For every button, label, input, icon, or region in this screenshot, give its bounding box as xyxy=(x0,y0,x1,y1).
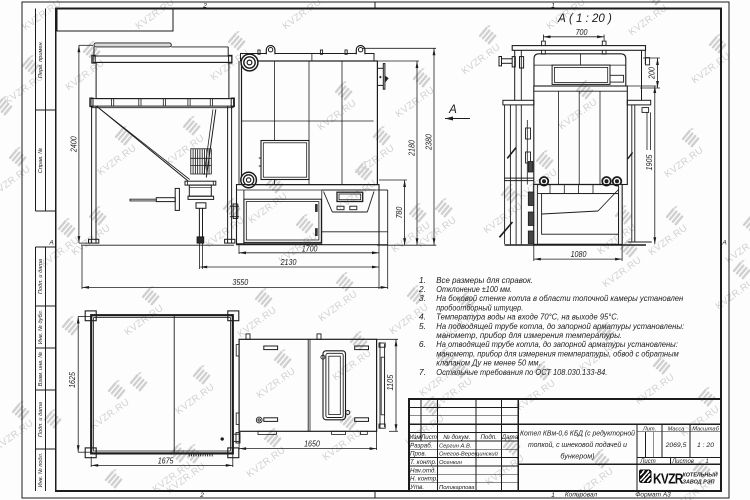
svg-text:Дата: Дата xyxy=(501,434,519,441)
svg-text:Н. контр.: Н. контр. xyxy=(410,476,438,483)
svg-text:Подп. и дата: Подп. и дата xyxy=(38,259,44,294)
svg-text:Лит.: Лит. xyxy=(642,426,656,432)
svg-text:2130: 2130 xyxy=(280,257,297,267)
svg-text:Подп.: Подп. xyxy=(480,434,496,441)
svg-text:1: 1 xyxy=(551,492,555,499)
svg-text:Сергин А.В.: Сергин А.В. xyxy=(439,443,471,449)
svg-text:1650: 1650 xyxy=(304,439,320,449)
svg-text:Масштаб: Масштаб xyxy=(692,426,719,432)
svg-text:1625: 1625 xyxy=(67,372,77,388)
svg-text:Копировал: Копировал xyxy=(565,492,598,499)
svg-text:Масса: Масса xyxy=(668,426,685,432)
svg-text:бункером): бункером) xyxy=(560,452,594,461)
svg-text:Лист: Лист xyxy=(420,434,437,441)
svg-text:А: А xyxy=(448,104,457,116)
svg-text:3.: 3. xyxy=(419,293,426,303)
svg-text:Справ. №: Справ. № xyxy=(38,148,44,173)
svg-text:Онегов-Верещинский: Онегов-Верещинский xyxy=(439,451,499,458)
svg-text:2380: 2380 xyxy=(424,134,434,151)
svg-text:Котел КВм-0,6 КБД (с редукторн: Котел КВм-0,6 КБД (с редукторной xyxy=(520,429,635,438)
svg-text:Нач.отд.: Нач.отд. xyxy=(410,467,436,474)
svg-text:780: 780 xyxy=(394,206,404,218)
svg-text:Формат А3: Формат А3 xyxy=(635,492,671,499)
svg-text:Разраб.: Разраб. xyxy=(410,442,432,449)
svg-text:Утв.: Утв. xyxy=(409,484,424,491)
svg-text:3550: 3550 xyxy=(232,277,248,287)
svg-text:KVZR: KVZR xyxy=(653,470,684,486)
svg-text:2069,5: 2069,5 xyxy=(665,442,687,449)
svg-text:200: 200 xyxy=(646,67,656,80)
svg-text:1 : 20: 1 : 20 xyxy=(697,442,714,449)
svg-text:топкой, с шнековой подачей и: топкой, с шнековой подачей и xyxy=(528,440,627,449)
svg-text:Осенкин: Осенкин xyxy=(439,460,463,466)
svg-text:2180: 2180 xyxy=(407,140,417,157)
svg-text:ЗАВОД РЭП: ЗАВОД РЭП xyxy=(683,480,715,486)
svg-text:1105: 1105 xyxy=(385,375,395,391)
svg-text:Т. контр.: Т. контр. xyxy=(410,459,437,466)
svg-text:А: А xyxy=(48,240,53,247)
svg-text:№ докум.: № докум. xyxy=(443,434,470,441)
svg-text:Поликарпова: Поликарпова xyxy=(439,485,475,491)
svg-text:Перв. примен.: Перв. примен. xyxy=(38,41,44,78)
svg-text:Лист: Лист xyxy=(639,459,655,465)
svg-text:А: А xyxy=(721,240,726,247)
svg-text:2: 2 xyxy=(199,492,204,499)
svg-text:Взам. инв. №: Взам. инв. № xyxy=(38,352,44,387)
svg-text:А ( 1 : 20 ): А ( 1 : 20 ) xyxy=(557,13,612,25)
svg-text:Инв. № подл.: Инв. № подл. xyxy=(38,453,44,488)
svg-text:Листов: Листов xyxy=(671,459,694,465)
svg-text:Изм: Изм xyxy=(409,434,421,441)
svg-text:1: 1 xyxy=(551,2,555,9)
svg-text:7.: 7. xyxy=(419,367,426,377)
svg-text:Подп. и дата: Подп. и дата xyxy=(38,402,44,437)
svg-text:2: 2 xyxy=(202,2,207,9)
svg-text:Пров.: Пров. xyxy=(410,451,426,458)
svg-text:2400: 2400 xyxy=(68,136,78,153)
svg-text:1905: 1905 xyxy=(644,154,654,170)
svg-text:1700: 1700 xyxy=(302,244,318,254)
svg-text:700: 700 xyxy=(576,27,588,37)
svg-text:Остальные требования по ОСТ 10: Остальные требования по ОСТ 108.030.133-… xyxy=(436,367,607,377)
svg-text:1: 1 xyxy=(705,459,708,465)
svg-text:6.: 6. xyxy=(419,339,426,349)
svg-text:КОТЕЛЬНЫЙ: КОТЕЛЬНЫЙ xyxy=(683,470,718,478)
svg-text:Инв. № дубл.: Инв. № дубл. xyxy=(38,310,44,344)
svg-text:1080: 1080 xyxy=(571,249,587,259)
svg-text:5.: 5. xyxy=(419,321,426,331)
svg-text:1675: 1675 xyxy=(158,456,174,466)
